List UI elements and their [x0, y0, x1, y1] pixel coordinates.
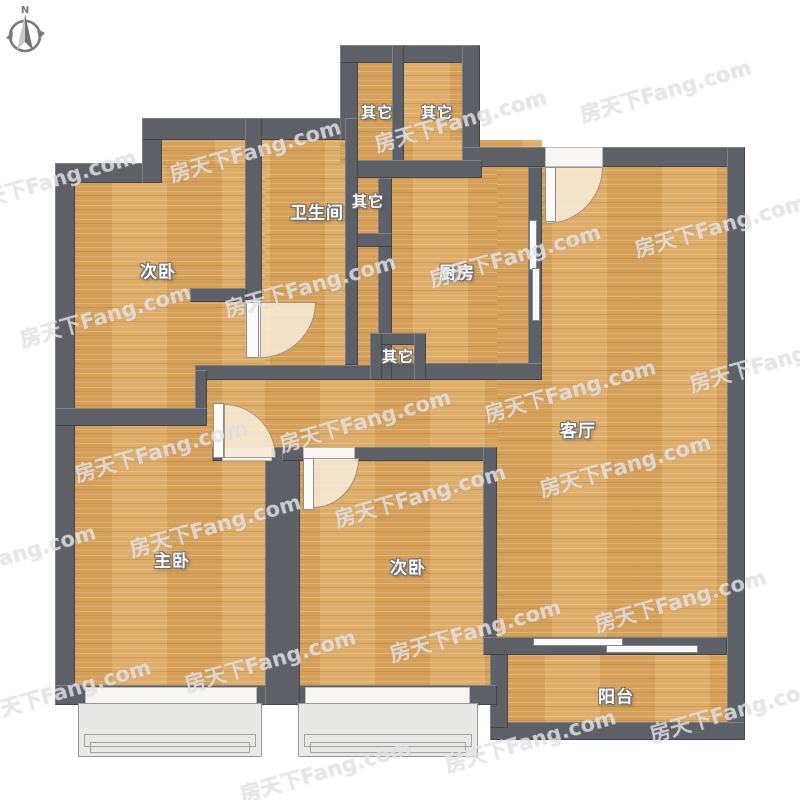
bay-window-frame — [90, 742, 250, 753]
room-label-balcony: 阳台 — [598, 683, 634, 708]
room-label-utility-shaft-3: 其它 — [352, 191, 384, 212]
room-label-living-room: 客厅 — [560, 417, 596, 442]
room-label-bedroom-second-topleft: 次卧 — [140, 258, 176, 283]
wall-shaft-top — [340, 45, 480, 63]
room-label-utility-shaft-2: 其它 — [421, 102, 453, 123]
wall-bedroom1-bathroom — [245, 118, 262, 303]
wall-bedroom2-east — [483, 447, 497, 653]
entry-door-opening — [545, 147, 603, 167]
compass-needle-dark — [25, 14, 33, 50]
wall-bathroom-east — [345, 118, 358, 365]
bay-window-frame — [310, 742, 466, 753]
compass-icon: N — [4, 2, 50, 62]
wall-outer-right — [727, 147, 745, 740]
wall-niche-left — [370, 333, 382, 380]
wall-between-bedrooms — [265, 447, 300, 705]
entry-door-leaf — [545, 167, 556, 222]
wall-below-shafts — [350, 160, 482, 178]
compass-needle-light — [17, 14, 25, 50]
wall-bathroom-south — [195, 365, 390, 380]
watermark: 房天下Fang.com — [576, 51, 754, 129]
wall-shaft-divider — [392, 45, 404, 165]
wall-outer-left — [55, 163, 75, 705]
kitchen-sliding-door-panel-2 — [532, 268, 540, 321]
bathroom-door-leaf — [246, 302, 259, 358]
bay-window-bedroom2 — [298, 703, 478, 757]
room-label-utility-shaft-1: 其它 — [361, 102, 393, 123]
master-door-leaf — [213, 403, 224, 458]
wall-stub-bedroom1 — [190, 288, 247, 302]
room-label-utility-niche: 其它 — [382, 346, 414, 367]
balcony-sliding-door-panel-2 — [606, 645, 698, 653]
wall-balcony-bottom — [490, 722, 745, 740]
bay-window-master — [78, 703, 262, 757]
room-label-bedroom-second-bottom: 次卧 — [390, 554, 426, 579]
floor-plan: 次卧 卫生间 其它 其它 其它 厨房 其它 客厅 主卧 次卧 阳台 N 房天下F… — [0, 0, 800, 800]
wall-outer-top-b — [462, 147, 745, 167]
room-label-bathroom: 卫生间 — [290, 199, 344, 224]
room-label-master-bedroom: 主卧 — [154, 547, 190, 572]
room-label-kitchen: 厨房 — [439, 259, 475, 284]
wall-bedroom1-south — [55, 408, 207, 426]
kitchen-sliding-door-panel-1 — [529, 220, 537, 270]
bedroom2-door-leaf — [303, 458, 314, 510]
wall-niche-right — [414, 333, 426, 380]
